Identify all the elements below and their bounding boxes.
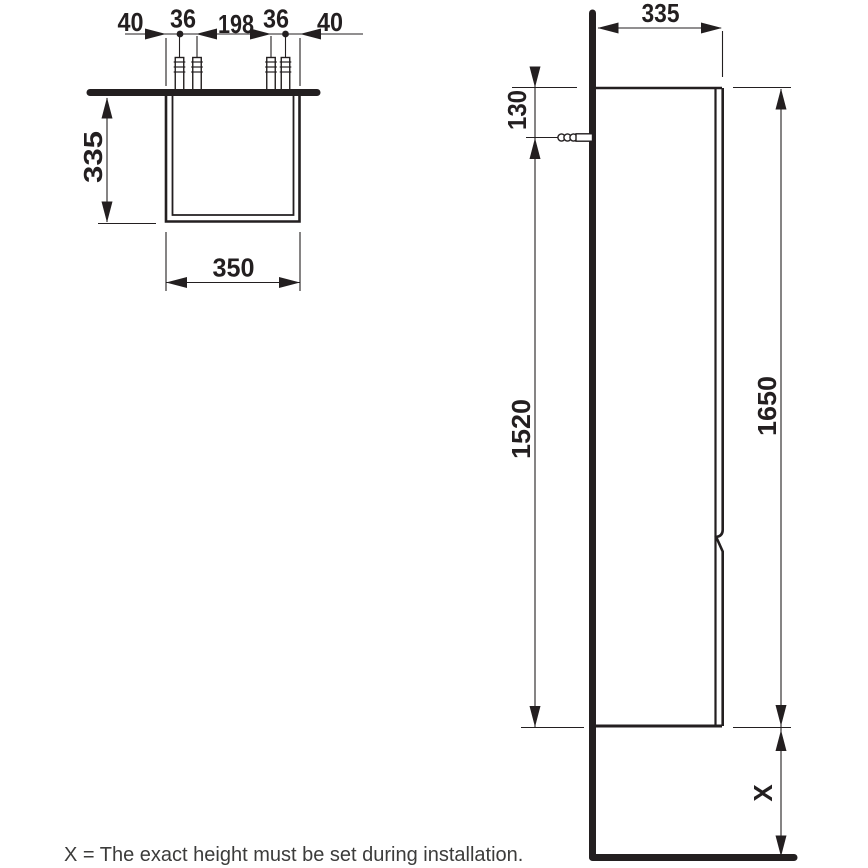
top-dim-chain [125, 34, 363, 86]
door-handle-notch [716, 88, 723, 726]
arrowhead [598, 23, 619, 34]
dim-label-40-left: 40 [118, 7, 144, 37]
wall-plug-icon [265, 36, 277, 91]
wall-plug-icon [174, 36, 186, 91]
dim-left-column: 130 1520 [502, 67, 584, 728]
arrowhead [776, 730, 787, 751]
arrowhead [776, 89, 787, 110]
dim-label-36-right: 36 [263, 4, 289, 34]
dim-label-40-right: 40 [317, 7, 343, 37]
wall-plug-icon [191, 36, 203, 91]
dim-width: 350 [166, 232, 300, 291]
dim-right-column: 1650 X [733, 88, 791, 857]
dim-label-x: X [748, 784, 778, 802]
dim-depth: 335 [78, 98, 156, 224]
dim-label-1650: 1650 [752, 376, 782, 436]
arrowhead [145, 29, 166, 40]
wall-plug-icon [280, 36, 292, 91]
dim-label-1520: 1520 [506, 399, 536, 459]
dim-label-depth-335: 335 [78, 131, 108, 183]
arrowhead [279, 277, 300, 288]
cabinet-top-outline [166, 96, 300, 222]
arrowhead [776, 836, 787, 857]
arrowhead [166, 277, 187, 288]
dim-label-335: 335 [642, 0, 680, 28]
arrowhead [530, 138, 541, 159]
arrowhead [701, 23, 722, 34]
arrowhead [102, 98, 113, 119]
arrowhead [530, 706, 541, 727]
wall-plug-icon [558, 134, 593, 141]
cabinet-side-profile [596, 88, 723, 726]
dim-top-width: 335 [598, 0, 723, 77]
drawing-canvas: 40 36 198 36 40 [0, 0, 868, 868]
dim-label-130: 130 [502, 90, 532, 130]
arrowhead [196, 29, 217, 40]
side-view: 335 130 1520 [502, 0, 794, 858]
dim-label-198: 198 [218, 9, 254, 39]
arrowhead [776, 705, 787, 726]
top-view: 40 36 198 36 40 [78, 4, 363, 292]
arrowhead [102, 202, 113, 223]
technical-drawing: 40 36 198 36 40 [0, 0, 868, 868]
dim-label-36-left: 36 [170, 4, 196, 34]
caption: X = The exact height must be set during … [64, 844, 523, 866]
dim-label-width-350: 350 [213, 253, 255, 283]
arrowhead [530, 67, 541, 88]
